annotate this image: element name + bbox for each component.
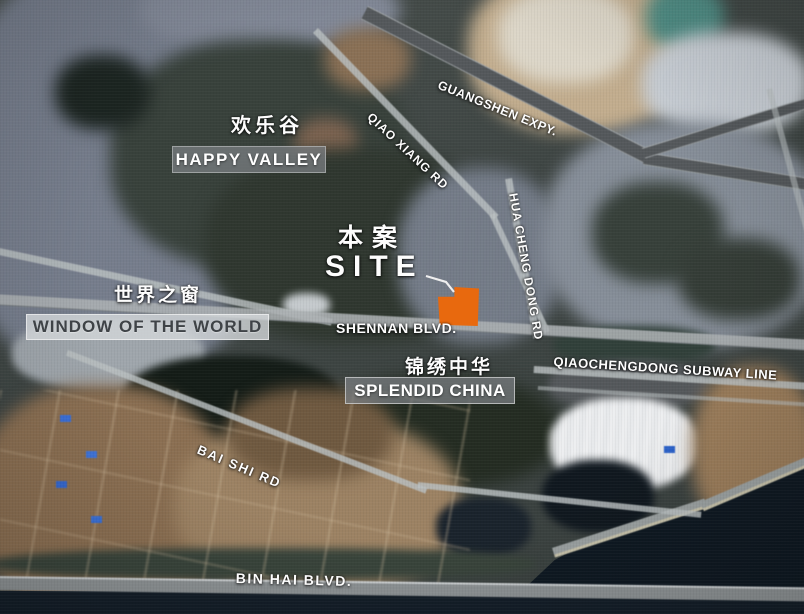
road-label-bin-hai-blvd: BIN HAI BLVD.	[236, 570, 353, 589]
site-label-en: SITE	[325, 250, 424, 284]
terrain-quarry-light	[498, 0, 633, 83]
satellite-map: 欢乐谷 HAPPY VALLEY GUANGSHEN EXPY. QIAO XI…	[0, 0, 804, 614]
site-pointer-line	[420, 270, 460, 298]
road-label-shennan-blvd: SHENNAN BLVD.	[336, 320, 457, 336]
splendid-china-label-box: SPLENDID CHINA	[345, 377, 515, 404]
happy-valley-label-box: HAPPY VALLEY	[172, 146, 326, 173]
happy-valley-label-zh: 欢乐谷	[231, 109, 303, 138]
terrain-park-east-2	[678, 238, 800, 320]
site-label-zh: 本案	[338, 218, 406, 254]
terrain-lake-happy-valley	[55, 55, 150, 130]
window-of-the-world-label-zh: 世界之窗	[114, 280, 202, 307]
splendid-china-label-zh: 锦绣中华	[405, 352, 493, 379]
window-of-the-world-label-box: WINDOW OF THE WORLD	[26, 314, 269, 340]
blue-roof-buildings	[60, 415, 71, 422]
